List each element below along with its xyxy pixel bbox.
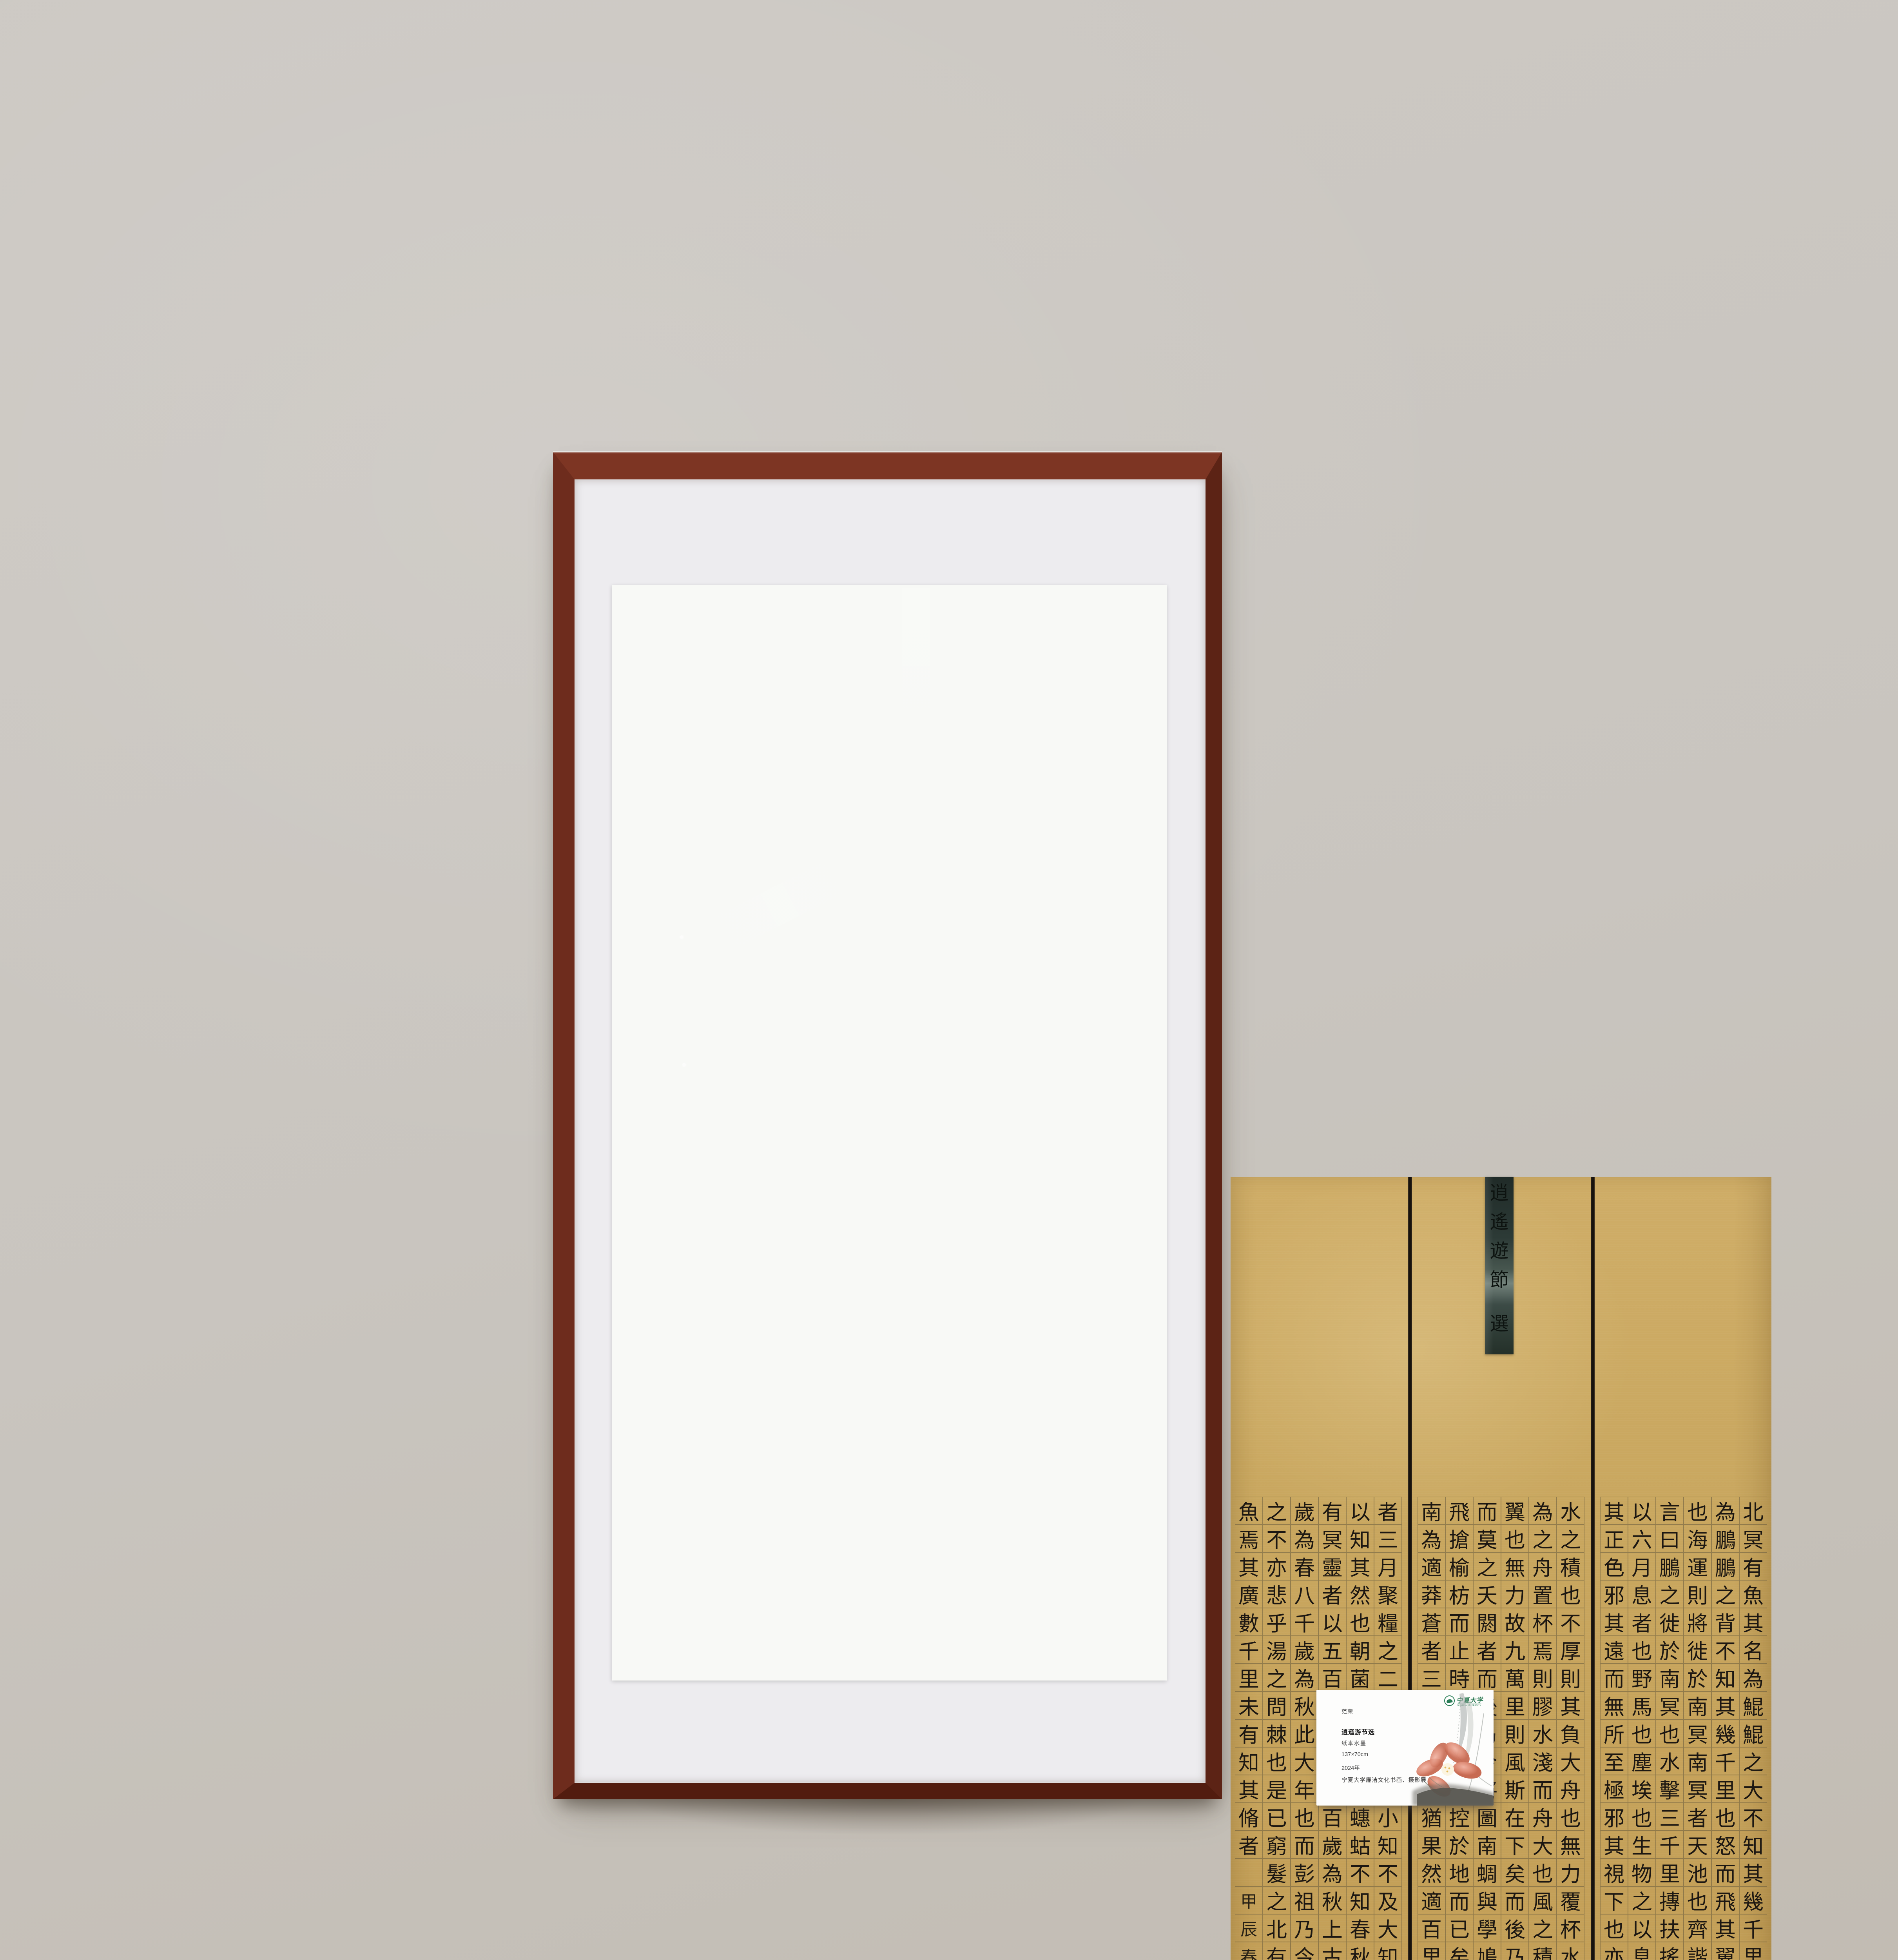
calligraphy-char: 無 xyxy=(1600,1691,1628,1719)
calligraphy-char: 邪 xyxy=(1600,1580,1628,1608)
calligraphy-char: 鵬 xyxy=(1711,1552,1739,1580)
calligraphy-char: 水 xyxy=(1557,1942,1584,1960)
calligraphy-char: 而 xyxy=(1529,1775,1557,1803)
calligraphy-char: 厚 xyxy=(1557,1636,1584,1664)
calligraphy-char: 而 xyxy=(1291,1831,1318,1858)
calligraphy-char: 菌 xyxy=(1346,1664,1374,1691)
frame-top-highlight xyxy=(553,451,1222,454)
calligraphy-char: 問 xyxy=(1263,1691,1291,1719)
calligraphy-char: 知 xyxy=(1374,1942,1402,1960)
calligraphy-char: 為 xyxy=(1291,1524,1318,1552)
calligraphy-char: 萬 xyxy=(1501,1664,1529,1691)
gallery-wall: 逍遙遊節選 者三月聚糧之二蟲又何知小知不及大知小年不及大年奚以知其然也朝菌不知晦… xyxy=(0,0,1898,1960)
calligraphy-char: 杯 xyxy=(1529,1608,1557,1636)
calligraphy-char: 者 xyxy=(1235,1831,1263,1858)
calligraphy-char: 夭 xyxy=(1473,1580,1501,1608)
calligraphy-char: 則 xyxy=(1529,1664,1557,1691)
university-logo: 宁夏大学 NINGXIA UNIVERSITY xyxy=(1444,1695,1491,1708)
calligraphy-char: 飛 xyxy=(1711,1886,1739,1914)
calligraphy-char: 上 xyxy=(1318,1914,1346,1942)
calligraphy-char: 歲 xyxy=(1291,1497,1318,1524)
calligraphy-char: 也 xyxy=(1684,1497,1711,1524)
calligraphy-char: 時 xyxy=(1445,1664,1473,1691)
calligraphy-char: 而 xyxy=(1473,1497,1501,1524)
calligraphy-char: 不 xyxy=(1263,1524,1291,1552)
calligraphy-char: 不 xyxy=(1711,1636,1739,1664)
calligraphy-char: 春 xyxy=(1346,1914,1374,1942)
calligraphy-char: 月 xyxy=(1628,1552,1656,1580)
calligraphy-char: 鳩 xyxy=(1473,1942,1501,1960)
calligraphy-char: 里 xyxy=(1501,1691,1529,1719)
calligraphy-char: 棘 xyxy=(1263,1719,1291,1747)
calligraphy-char: 則 xyxy=(1557,1664,1584,1691)
calligraphy-char: 窮 xyxy=(1263,1831,1291,1858)
calligraphy-char: 未 xyxy=(1235,1691,1263,1719)
calligraphy-char: 也 xyxy=(1684,1886,1711,1914)
calligraphy-char: 其 xyxy=(1600,1831,1628,1858)
calligraphy-column: 歲為春八千歲為秋此大年也而彭祖乃今以久特聞眾人匹 xyxy=(1291,1497,1318,1960)
calligraphy-char: 其 xyxy=(1711,1691,1739,1719)
calligraphy-char: 地 xyxy=(1445,1858,1473,1886)
artwork-year: 2024年 xyxy=(1341,1764,1360,1772)
calligraphy-char: 不 xyxy=(1374,1858,1402,1886)
calligraphy-char: 之 xyxy=(1263,1886,1291,1914)
calligraphy-char: 有 xyxy=(1318,1497,1346,1524)
calligraphy-char: 大 xyxy=(1529,1831,1557,1858)
calligraphy-char: 而 xyxy=(1445,1608,1473,1636)
calligraphy-char: 南 xyxy=(1656,1664,1684,1691)
calligraphy-char: 其 xyxy=(1346,1552,1374,1580)
calligraphy-char: 之 xyxy=(1529,1914,1557,1942)
calligraphy-char: 此 xyxy=(1291,1719,1318,1747)
calligraphy-char: 者 xyxy=(1318,1580,1346,1608)
calligraphy-char: 馬 xyxy=(1628,1691,1656,1719)
calligraphy-char: 言 xyxy=(1656,1497,1684,1524)
calligraphy-char: 生 xyxy=(1628,1831,1656,1858)
calligraphy-char: 里 xyxy=(1711,1775,1739,1803)
calligraphy-char: 力 xyxy=(1501,1580,1529,1608)
calligraphy-char: 為 xyxy=(1739,1664,1767,1691)
artwork-title: 逍遥游节选 xyxy=(1341,1727,1375,1736)
calligraphy-char: 鵬 xyxy=(1711,1524,1739,1552)
calligraphy-char: 積 xyxy=(1529,1942,1557,1960)
calligraphy-char: 也 xyxy=(1529,1858,1557,1886)
calligraphy-char: 怒 xyxy=(1711,1831,1739,1858)
calligraphy-char: 今 xyxy=(1291,1942,1318,1960)
calligraphy-char: 北 xyxy=(1739,1497,1767,1524)
calligraphy-char: 六 xyxy=(1628,1524,1656,1552)
calligraphy-char: 舟 xyxy=(1529,1803,1557,1831)
calligraphy-char: 也 xyxy=(1656,1719,1684,1747)
calligraphy-char: 搖 xyxy=(1656,1942,1684,1960)
calligraphy-char: 知 xyxy=(1235,1747,1263,1775)
calligraphy-char: 不 xyxy=(1346,1858,1374,1886)
calligraphy-char: 其 xyxy=(1235,1552,1263,1580)
calligraphy-char: 翼 xyxy=(1711,1942,1739,1960)
calligraphy-char: 蟪 xyxy=(1346,1803,1374,1831)
calligraphy-char: 幾 xyxy=(1711,1719,1739,1747)
calligraphy-char: 則 xyxy=(1501,1719,1529,1747)
calligraphy-char: 百 xyxy=(1318,1803,1346,1831)
calligraphy-char: 於 xyxy=(1445,1831,1473,1858)
calligraphy-char: 不 xyxy=(1739,1803,1767,1831)
calligraphy-char: 乃 xyxy=(1291,1914,1318,1942)
calligraphy-char: 有 xyxy=(1739,1552,1767,1580)
calligraphy-char: 也 xyxy=(1628,1719,1656,1747)
exhibition-label-card: 范荣 逍遥游节选 纸本水墨 137×70cm 2024年 宁夏大学廉洁文化书画、… xyxy=(1316,1690,1494,1806)
calligraphy-char: 月 xyxy=(1374,1552,1402,1580)
calligraphy-char: 五 xyxy=(1318,1636,1346,1664)
calligraphy-char: 數 xyxy=(1235,1608,1263,1636)
calligraphy-char: 風 xyxy=(1501,1747,1529,1775)
calligraphy-char: 大 xyxy=(1291,1747,1318,1775)
calligraphy-char: 里 xyxy=(1739,1942,1767,1960)
calligraphy-char: 大 xyxy=(1739,1775,1767,1803)
calligraphy-char: 三 xyxy=(1656,1803,1684,1831)
calligraphy-char: 千 xyxy=(1235,1636,1263,1664)
calligraphy-char: 在 xyxy=(1501,1803,1529,1831)
calligraphy-char: 焉 xyxy=(1235,1524,1263,1552)
calligraphy-char: 止 xyxy=(1445,1636,1473,1664)
calligraphy-char: 息 xyxy=(1628,1580,1656,1608)
calligraphy-char: 也 xyxy=(1263,1747,1291,1775)
calligraphy-column: 北冥有魚其名為鯤鯤之大不知其幾千里也化而為鳥其名 xyxy=(1739,1497,1767,1960)
calligraphy-char: 齊 xyxy=(1684,1914,1711,1942)
calligraphy-char: 然 xyxy=(1418,1858,1445,1886)
title-strip-char: 選 xyxy=(1485,1312,1514,1336)
calligraphy-char: 者 xyxy=(1473,1636,1501,1664)
calligraphy-char: 亦 xyxy=(1600,1942,1628,1960)
calligraphy-char: 為 xyxy=(1418,1524,1445,1552)
calligraphy-char: 以 xyxy=(1318,1608,1346,1636)
calligraphy-char: 積 xyxy=(1557,1552,1584,1580)
calligraphy-char: 也 xyxy=(1628,1636,1656,1664)
calligraphy-char: 翼 xyxy=(1501,1497,1529,1524)
calligraphy-char: 其 xyxy=(1739,1608,1767,1636)
calligraphy-char: 負 xyxy=(1557,1719,1584,1747)
title-strip-char: 遙 xyxy=(1485,1210,1514,1234)
calligraphy-char: 背 xyxy=(1711,1608,1739,1636)
calligraphy-char: 千 xyxy=(1711,1747,1739,1775)
calligraphy-panel-right: 北冥有魚其名為鯤鯤之大不知其幾千里也化而為鳥其名為鵬鵬之背不知其幾千里也怒而飛其… xyxy=(1600,1497,1767,1960)
calligraphy-char: 千 xyxy=(1291,1608,1318,1636)
calligraphy-char: 擊 xyxy=(1656,1775,1684,1803)
artwork-sheet: 逍遙遊節選 者三月聚糧之二蟲又何知小知不及大知小年不及大年奚以知其然也朝菌不知晦… xyxy=(612,585,1167,1681)
title-strip-char: 遊 xyxy=(1485,1240,1514,1263)
glass-speck xyxy=(680,935,683,939)
calligraphy-char: 其 xyxy=(1739,1858,1767,1886)
calligraphy-column: 翼也無力故九萬里則風斯在下矣而後乃今培風背負青天 xyxy=(1501,1497,1529,1960)
calligraphy-char: 而 xyxy=(1445,1886,1473,1914)
calligraphy-char: 其 xyxy=(1600,1497,1628,1524)
calligraphy-char: 則 xyxy=(1684,1580,1711,1608)
calligraphy-char: 其 xyxy=(1711,1914,1739,1942)
calligraphy-char xyxy=(1235,1858,1263,1886)
calligraphy-char: 其 xyxy=(1600,1608,1628,1636)
calligraphy-char: 飛 xyxy=(1445,1497,1473,1524)
calligraphy-char: 之 xyxy=(1263,1497,1291,1524)
calligraphy-char: 冥 xyxy=(1656,1691,1684,1719)
calligraphy-column: 為之舟置杯焉則膠水淺而舟大也風之積也不厚則其負大 xyxy=(1529,1497,1557,1960)
calligraphy-char: 其 xyxy=(1235,1775,1263,1803)
calligraphy-char: 糧 xyxy=(1374,1608,1402,1636)
calligraphy-char: 力 xyxy=(1557,1858,1584,1886)
calligraphy-char: 覆 xyxy=(1557,1886,1584,1914)
calligraphy-char: 為 xyxy=(1318,1858,1346,1886)
gold-paper: 逍遙遊節選 者三月聚糧之二蟲又何知小知不及大知小年不及大年奚以知其然也朝菌不知晦… xyxy=(1231,1177,1771,1960)
title-strip-char: 逍 xyxy=(1485,1181,1514,1205)
calligraphy-char: 天 xyxy=(1684,1831,1711,1858)
calligraphy-char: 也 xyxy=(1291,1803,1318,1831)
calligraphy-char: 古 xyxy=(1318,1942,1346,1960)
calligraphy-char: 猶 xyxy=(1418,1803,1445,1831)
calligraphy-char: 之 xyxy=(1374,1636,1402,1664)
calligraphy-char: 彭 xyxy=(1291,1858,1318,1886)
calligraphy-char: 運 xyxy=(1684,1552,1711,1580)
calligraphy-char: 埃 xyxy=(1628,1775,1656,1803)
calligraphy-char: 風 xyxy=(1529,1886,1557,1914)
glass-speck xyxy=(682,1063,686,1067)
calligraphy-char: 為 xyxy=(1529,1497,1557,1524)
calligraphy-char: 南 xyxy=(1684,1747,1711,1775)
calligraphy-char: 已 xyxy=(1263,1803,1291,1831)
calligraphy-char: 二 xyxy=(1374,1664,1402,1691)
calligraphy-char: 蛄 xyxy=(1346,1831,1374,1858)
calligraphy-char: 知 xyxy=(1374,1831,1402,1858)
calligraphy-char: 廣 xyxy=(1235,1580,1263,1608)
calligraphy-char: 之 xyxy=(1656,1580,1684,1608)
calligraphy-char: 野 xyxy=(1628,1664,1656,1691)
calligraphy-char: 枋 xyxy=(1445,1580,1473,1608)
calligraphy-char: 也 xyxy=(1628,1803,1656,1831)
calligraphy-char: 鯤 xyxy=(1739,1691,1767,1719)
calligraphy-column: 魚焉其廣數千里未有知其脩者甲辰春月范榮書 xyxy=(1235,1497,1263,1960)
calligraphy-char: 已 xyxy=(1445,1914,1473,1942)
calligraphy-column: 為鵬鵬之背不知其幾千里也怒而飛其翼若垂天之雲是鳥 xyxy=(1711,1497,1739,1960)
calligraphy-char: 遠 xyxy=(1600,1636,1628,1664)
calligraphy-char: 淺 xyxy=(1529,1747,1557,1775)
calligraphy-char: 故 xyxy=(1501,1608,1529,1636)
calligraphy-char: 搶 xyxy=(1445,1524,1473,1552)
calligraphy-char: 所 xyxy=(1600,1719,1628,1747)
artist-name: 范荣 xyxy=(1341,1708,1353,1715)
calligraphy-char: 然 xyxy=(1346,1580,1374,1608)
calligraphy-char: 祖 xyxy=(1291,1886,1318,1914)
calligraphy-char: 歲 xyxy=(1318,1831,1346,1858)
calligraphy-char: 之 xyxy=(1711,1580,1739,1608)
calligraphy-char: 知 xyxy=(1346,1886,1374,1914)
calligraphy-char: 乃 xyxy=(1501,1942,1529,1960)
calligraphy-char: 之 xyxy=(1739,1747,1767,1775)
calligraphy-char: 下 xyxy=(1600,1886,1628,1914)
calligraphy-char: 而 xyxy=(1501,1886,1529,1914)
calligraphy-char: 息 xyxy=(1628,1942,1656,1960)
calligraphy-char: 而 xyxy=(1711,1858,1739,1886)
calligraphy-char: 秋 xyxy=(1318,1886,1346,1914)
calligraphy-char: 圖 xyxy=(1473,1803,1501,1831)
calligraphy-char: 朝 xyxy=(1346,1636,1374,1664)
ningxia-university-emblem-icon xyxy=(1444,1695,1455,1706)
title-strip: 逍遙遊節選 xyxy=(1485,1177,1514,1354)
calligraphy-char: 南 xyxy=(1418,1497,1445,1524)
calligraphy-char: 鵬 xyxy=(1656,1552,1684,1580)
calligraphy-char: 之 xyxy=(1628,1886,1656,1914)
calligraphy-char: 無 xyxy=(1557,1831,1584,1858)
calligraphy-char: 之 xyxy=(1473,1552,1501,1580)
calligraphy-char: 其 xyxy=(1557,1691,1584,1719)
signature-char: 辰 xyxy=(1235,1914,1263,1942)
calligraphy-char: 也 xyxy=(1557,1580,1584,1608)
calligraphy-char: 舟 xyxy=(1529,1552,1557,1580)
calligraphy-char: 幾 xyxy=(1739,1886,1767,1914)
calligraphy-char: 諧 xyxy=(1684,1942,1711,1960)
calligraphy-char: 摶 xyxy=(1656,1886,1684,1914)
calligraphy-char: 杯 xyxy=(1557,1914,1584,1942)
calligraphy-char: 也 xyxy=(1501,1524,1529,1552)
calligraphy-char: 小 xyxy=(1374,1803,1402,1831)
calligraphy-char: 與 xyxy=(1473,1886,1501,1914)
calligraphy-char: 鯤 xyxy=(1739,1719,1767,1747)
calligraphy-char: 焉 xyxy=(1529,1636,1557,1664)
calligraphy-column: 以六月息者也野馬也塵埃也生物之以息相吹也天之蒼蒼 xyxy=(1628,1497,1656,1960)
calligraphy-char: 以 xyxy=(1628,1497,1656,1524)
calligraphy-char: 湯 xyxy=(1263,1636,1291,1664)
artwork-medium: 纸本水墨 xyxy=(1341,1739,1367,1747)
calligraphy-char: 冥 xyxy=(1318,1524,1346,1552)
calligraphy-char: 適 xyxy=(1418,1552,1445,1580)
calligraphy-char: 而 xyxy=(1473,1664,1501,1691)
calligraphy-column: 言曰鵬之徙於南冥也水擊三千里摶扶搖而上者九萬里去 xyxy=(1656,1497,1684,1960)
calligraphy-column: 也海運則將徙於南冥南冥者天池也齊諧者志怪者也諧之 xyxy=(1684,1497,1711,1960)
calligraphy-char: 邪 xyxy=(1600,1803,1628,1831)
calligraphy-char: 水 xyxy=(1529,1719,1557,1747)
calligraphy-char: 北 xyxy=(1263,1914,1291,1942)
frame-cast-shadow xyxy=(545,1798,1231,1849)
calligraphy-char: 三 xyxy=(1418,1664,1445,1691)
calligraphy-char: 視 xyxy=(1600,1858,1628,1886)
calligraphy-char: 扶 xyxy=(1656,1914,1684,1942)
calligraphy-char: 冥 xyxy=(1684,1775,1711,1803)
calligraphy-char: 者 xyxy=(1684,1803,1711,1831)
calligraphy-char: 水 xyxy=(1557,1497,1584,1524)
calligraphy-char: 膠 xyxy=(1529,1691,1557,1719)
calligraphy-char: 髮 xyxy=(1263,1858,1291,1886)
panel-divider-right xyxy=(1591,1177,1595,1960)
calligraphy-char: 徙 xyxy=(1656,1608,1684,1636)
calligraphy-char: 春 xyxy=(1291,1552,1318,1580)
calligraphy-char: 者 xyxy=(1628,1608,1656,1636)
calligraphy-char: 至 xyxy=(1600,1747,1628,1775)
calligraphy-char: 之 xyxy=(1263,1664,1291,1691)
calligraphy-column: 水之積也不厚則其負大舟也無力覆杯水於坳堂之上則芥 xyxy=(1557,1497,1584,1960)
calligraphy-char: 將 xyxy=(1684,1608,1711,1636)
calligraphy-char: 矣 xyxy=(1501,1858,1529,1886)
calligraphy-char: 置 xyxy=(1529,1580,1557,1608)
artwork-dimensions: 137×70cm xyxy=(1341,1751,1368,1758)
calligraphy-char: 曰 xyxy=(1656,1524,1684,1552)
calligraphy-char: 是 xyxy=(1263,1775,1291,1803)
calligraphy-char: 為 xyxy=(1291,1664,1318,1691)
calligraphy-char: 里 xyxy=(1656,1858,1684,1886)
calligraphy-char: 閼 xyxy=(1473,1608,1501,1636)
calligraphy-char: 於 xyxy=(1684,1664,1711,1691)
calligraphy-char: 及 xyxy=(1374,1886,1402,1914)
calligraphy-char: 知 xyxy=(1739,1831,1767,1858)
calligraphy-char: 冥 xyxy=(1739,1524,1767,1552)
calligraphy-char: 秋 xyxy=(1346,1942,1374,1960)
calligraphy-char: 下 xyxy=(1501,1831,1529,1858)
calligraphy-char: 九 xyxy=(1501,1636,1529,1664)
calligraphy-char: 之 xyxy=(1529,1524,1557,1552)
calligraphy-char: 者 xyxy=(1374,1497,1402,1524)
title-strip-char: 節 xyxy=(1485,1269,1514,1292)
calligraphy-char: 水 xyxy=(1656,1747,1684,1775)
calligraphy-char: 者 xyxy=(1418,1636,1445,1664)
calligraphy-char: 之 xyxy=(1557,1524,1584,1552)
calligraphy-char: 有 xyxy=(1263,1942,1291,1960)
calligraphy-char: 以 xyxy=(1346,1497,1374,1524)
calligraphy-column: 之不亦悲乎湯之問棘也是已窮髮之北有冥海者天池也有 xyxy=(1263,1497,1291,1960)
calligraphy-char: 色 xyxy=(1600,1552,1628,1580)
calligraphy-char: 知 xyxy=(1711,1664,1739,1691)
calligraphy-char: 於 xyxy=(1656,1636,1684,1664)
calligraphy-char: 魚 xyxy=(1235,1497,1263,1524)
exhibition-name: 宁夏大学廉洁文化书画、摄影展 xyxy=(1341,1776,1427,1784)
calligraphy-char: 歲 xyxy=(1291,1636,1318,1664)
calligraphy-char: 有 xyxy=(1235,1719,1263,1747)
calligraphy-char: 百 xyxy=(1418,1914,1445,1942)
calligraphy-char: 靈 xyxy=(1318,1552,1346,1580)
calligraphy-char: 蜩 xyxy=(1473,1858,1501,1886)
calligraphy-char: 不 xyxy=(1557,1608,1584,1636)
university-name-en: NINGXIA UNIVERSITY xyxy=(1457,1704,1481,1707)
calligraphy-char: 秋 xyxy=(1291,1691,1318,1719)
calligraphy-char: 三 xyxy=(1374,1524,1402,1552)
calligraphy-char: 果 xyxy=(1418,1831,1445,1858)
calligraphy-char: 千 xyxy=(1739,1914,1767,1942)
calligraphy-char: 徙 xyxy=(1684,1636,1711,1664)
calligraphy-char: 蒼 xyxy=(1418,1608,1445,1636)
calligraphy-char: 名 xyxy=(1739,1636,1767,1664)
calligraphy-char: 南 xyxy=(1473,1831,1501,1858)
calligraphy-char: 八 xyxy=(1291,1580,1318,1608)
calligraphy-char: 而 xyxy=(1600,1664,1628,1691)
calligraphy-char: 里 xyxy=(1235,1664,1263,1691)
calligraphy-char: 物 xyxy=(1628,1858,1656,1886)
calligraphy-char: 舟 xyxy=(1557,1775,1584,1803)
calligraphy-char: 海 xyxy=(1684,1524,1711,1552)
calligraphy-char: 為 xyxy=(1711,1497,1739,1524)
calligraphy-char: 百 xyxy=(1318,1664,1346,1691)
calligraphy-char: 亦 xyxy=(1263,1552,1291,1580)
calligraphy-char: 脩 xyxy=(1235,1803,1263,1831)
calligraphy-char: 莫 xyxy=(1473,1524,1501,1552)
calligraphy-char: 也 xyxy=(1346,1608,1374,1636)
calligraphy-char: 無 xyxy=(1501,1552,1529,1580)
calligraphy-column: 其正色邪其遠而無所至極邪其視下也亦若是則已矣且夫 xyxy=(1600,1497,1628,1960)
calligraphy-char: 大 xyxy=(1374,1914,1402,1942)
calligraphy-char: 池 xyxy=(1684,1858,1711,1886)
calligraphy-char: 年 xyxy=(1291,1775,1318,1803)
calligraphy-char: 正 xyxy=(1600,1524,1628,1552)
calligraphy-char: 以 xyxy=(1628,1914,1656,1942)
calligraphy-char: 莽 xyxy=(1418,1580,1445,1608)
calligraphy-char: 控 xyxy=(1445,1803,1473,1831)
calligraphy-char: 知 xyxy=(1346,1524,1374,1552)
panel-divider-left xyxy=(1408,1177,1412,1960)
calligraphy-char: 學 xyxy=(1473,1914,1501,1942)
calligraphy-char: 也 xyxy=(1557,1803,1584,1831)
